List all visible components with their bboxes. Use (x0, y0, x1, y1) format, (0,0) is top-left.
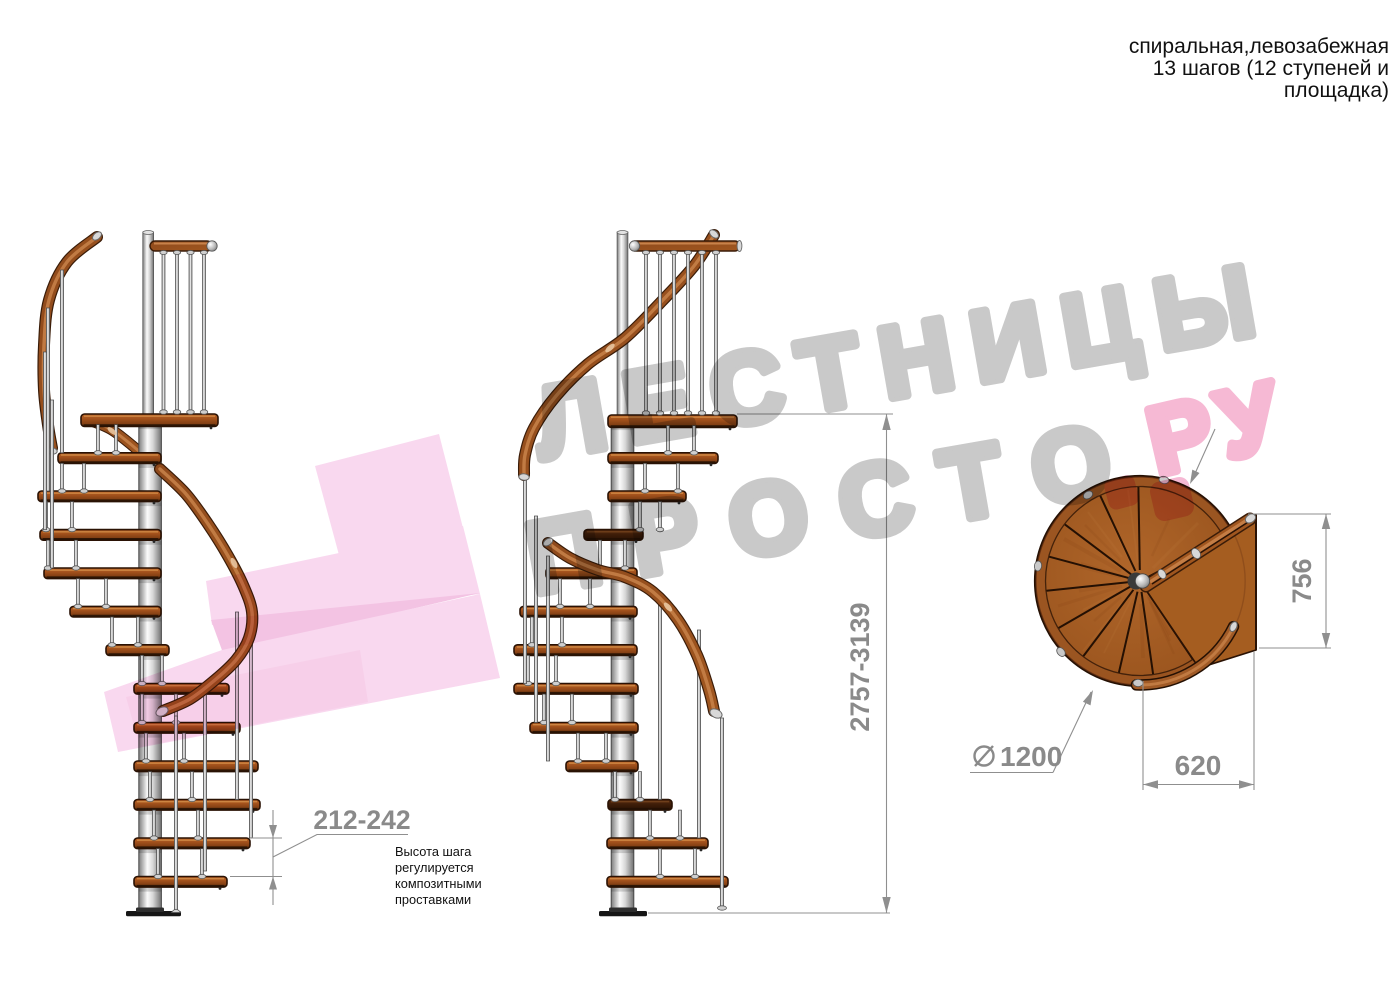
svg-text:регулируется: регулируется (395, 860, 474, 875)
svg-text:13 шагов (12 ступеней и: 13 шагов (12 ступеней и (1153, 57, 1389, 80)
svg-text:2757-3139: 2757-3139 (845, 602, 875, 731)
svg-text:1200: 1200 (1000, 741, 1062, 772)
svg-text:620: 620 (1175, 750, 1222, 781)
svg-text:756: 756 (1287, 558, 1317, 603)
svg-text:212-242: 212-242 (313, 805, 410, 835)
svg-text:Высота шага: Высота шага (395, 844, 472, 859)
svg-text:композитными: композитными (395, 876, 482, 891)
svg-text:проставками: проставками (395, 892, 471, 907)
svg-text:площадка): площадка) (1284, 79, 1389, 102)
svg-text:спиральная,левозабежная: спиральная,левозабежная (1129, 35, 1389, 58)
